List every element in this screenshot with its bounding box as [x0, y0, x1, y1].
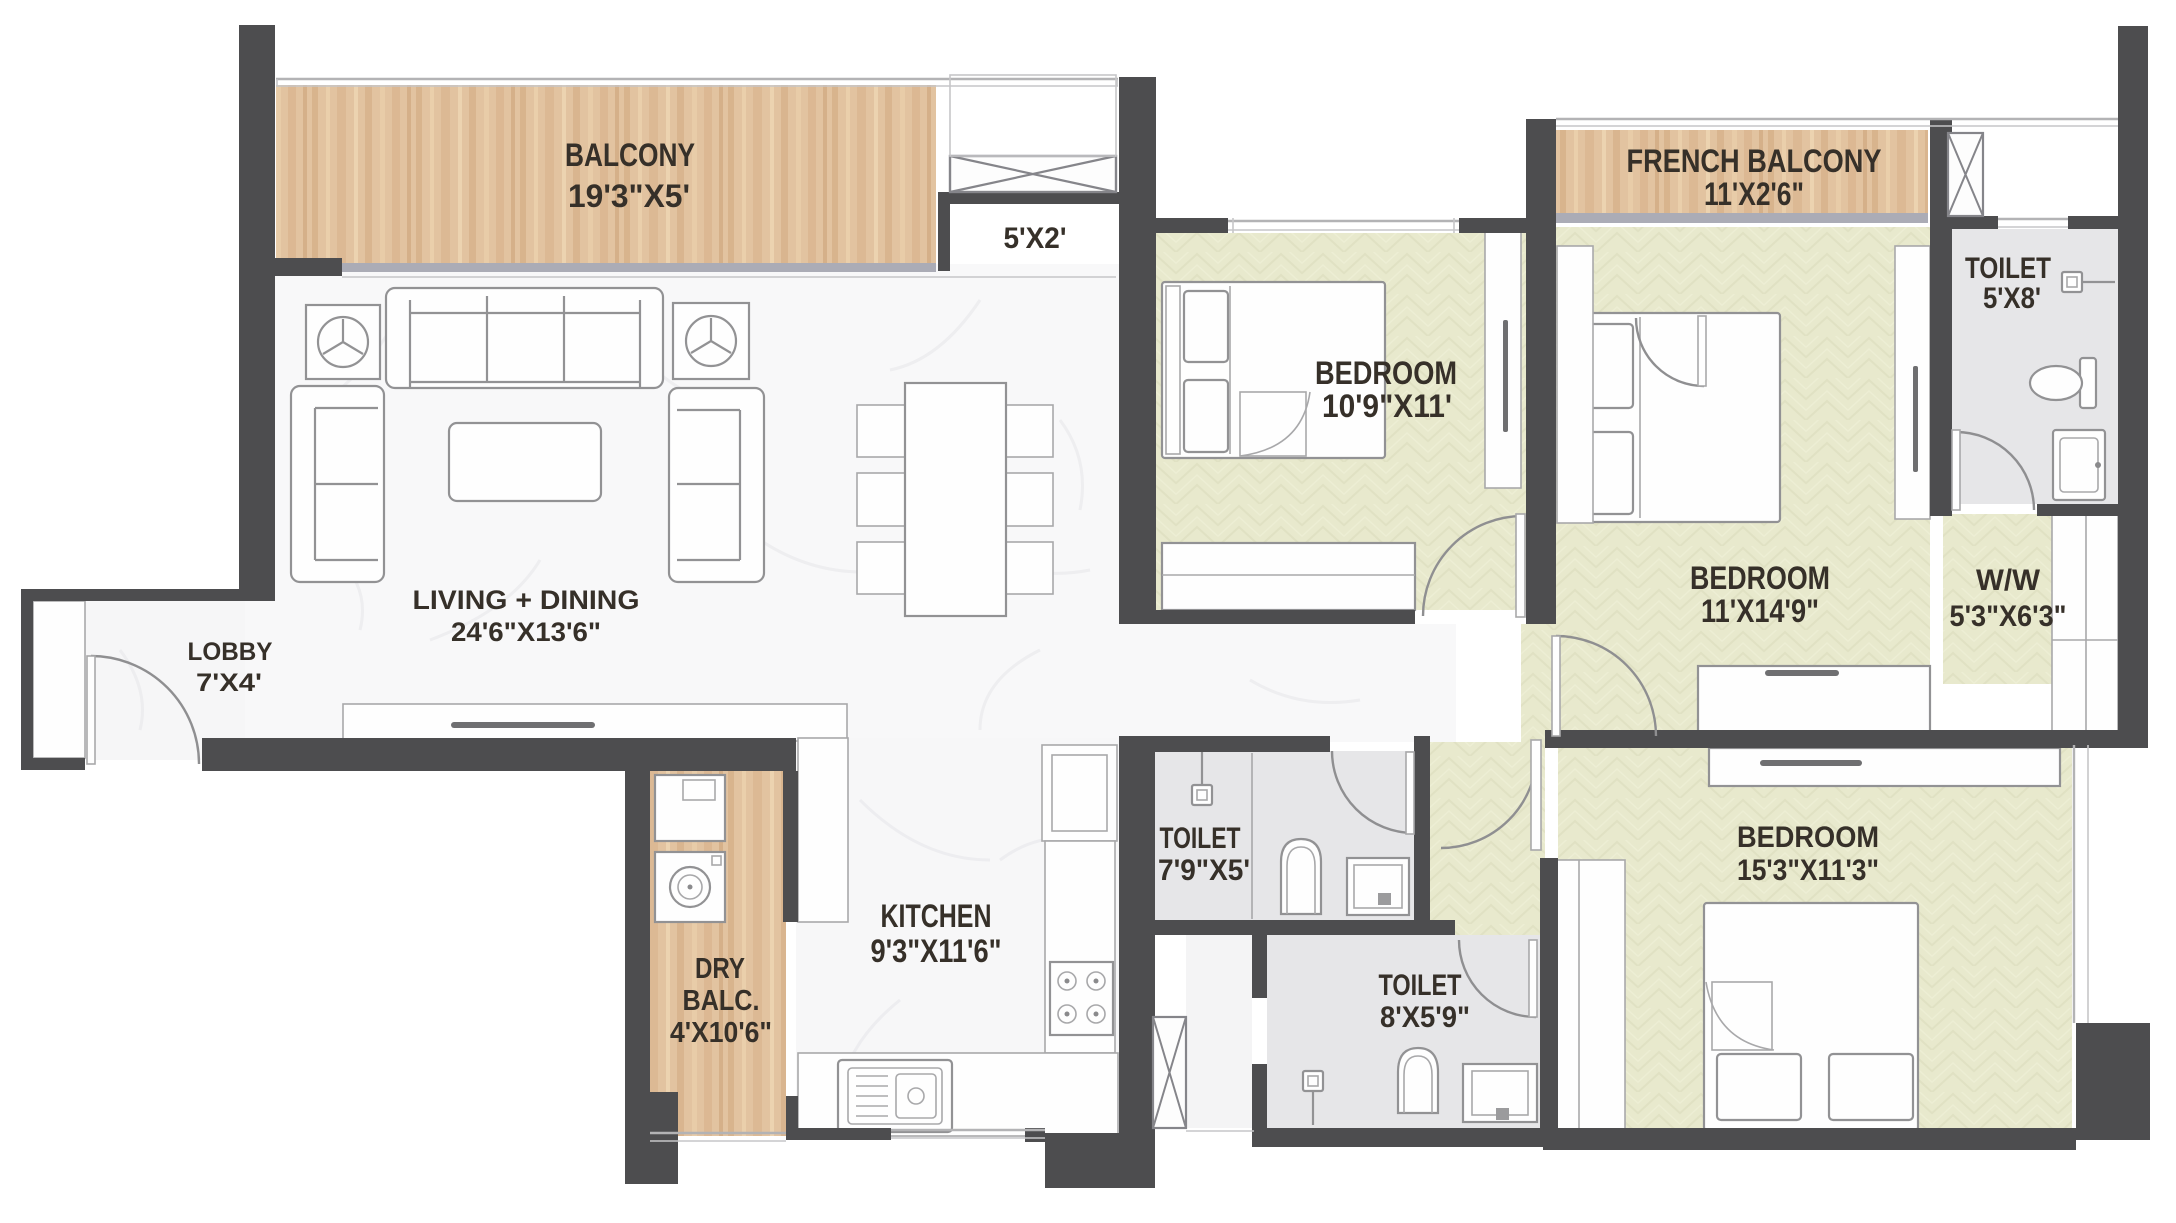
svg-text:FRENCH BALCONY: FRENCH BALCONY	[1627, 143, 1882, 179]
svg-text:5'X8': 5'X8'	[1983, 282, 2041, 315]
svg-text:TOILET: TOILET	[1160, 822, 1241, 855]
svg-text:TOILET: TOILET	[1379, 969, 1462, 1002]
svg-text:BEDROOM: BEDROOM	[1315, 355, 1457, 391]
svg-text:8'X5'9": 8'X5'9"	[1380, 1001, 1470, 1034]
svg-text:LOBBY: LOBBY	[188, 638, 273, 666]
svg-text:4'X10'6": 4'X10'6"	[670, 1017, 772, 1049]
svg-text:19'3"X5': 19'3"X5'	[568, 178, 690, 214]
svg-text:DRY: DRY	[695, 953, 745, 985]
svg-text:TOILET: TOILET	[1965, 252, 2051, 285]
svg-text:W/W: W/W	[1976, 564, 2041, 597]
svg-text:11'X14'9": 11'X14'9"	[1701, 593, 1819, 629]
svg-text:9'3"X11'6": 9'3"X11'6"	[871, 933, 1002, 969]
svg-text:5'X2': 5'X2'	[1004, 222, 1067, 255]
svg-text:24'6"X13'6": 24'6"X13'6"	[451, 617, 601, 647]
svg-text:5'3"X6'3": 5'3"X6'3"	[1950, 600, 2067, 633]
svg-text:BALC.: BALC.	[683, 985, 760, 1017]
svg-text:15'3"X11'3": 15'3"X11'3"	[1737, 854, 1879, 887]
svg-text:BEDROOM: BEDROOM	[1690, 560, 1830, 596]
svg-text:7'X4': 7'X4'	[196, 669, 262, 697]
svg-text:7'9"X5': 7'9"X5'	[1158, 854, 1250, 887]
svg-text:KITCHEN: KITCHEN	[881, 898, 992, 934]
svg-text:BEDROOM: BEDROOM	[1737, 821, 1879, 854]
svg-text:LIVING + DINING: LIVING + DINING	[413, 585, 640, 615]
svg-text:BALCONY: BALCONY	[565, 137, 695, 173]
svg-text:11'X2'6": 11'X2'6"	[1704, 176, 1804, 212]
svg-text:10'9"X11': 10'9"X11'	[1322, 388, 1452, 424]
